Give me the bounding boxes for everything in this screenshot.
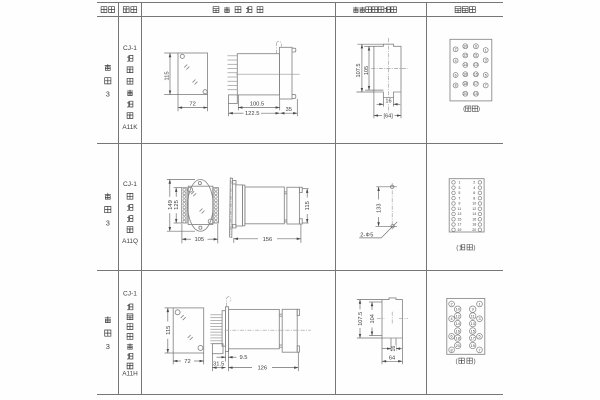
svg-text:19: 19: [457, 228, 461, 232]
svg-text:9: 9: [458, 202, 460, 206]
svg-text:104: 104: [370, 314, 376, 323]
svg-text:35: 35: [285, 107, 291, 113]
svg-text:3: 3: [478, 317, 480, 321]
svg-text:14: 14: [472, 212, 476, 216]
svg-text:5: 5: [485, 73, 487, 77]
svg-text:64: 64: [389, 355, 395, 361]
svg-text:4: 4: [451, 317, 453, 321]
svg-text:16: 16: [456, 329, 460, 333]
svg-text:1: 1: [485, 48, 487, 52]
svg-text:8: 8: [451, 348, 453, 352]
svg-text:10: 10: [463, 45, 467, 49]
svg-text:11: 11: [458, 207, 462, 211]
svg-text:15: 15: [471, 329, 475, 333]
svg-text:13: 13: [457, 212, 461, 216]
svg-text:17: 17: [474, 82, 478, 86]
svg-text:16: 16: [385, 98, 391, 104]
svg-text:72: 72: [189, 102, 195, 108]
svg-text:9.5: 9.5: [239, 355, 247, 361]
svg-text:12: 12: [472, 207, 476, 211]
svg-text:17: 17: [457, 223, 461, 227]
svg-text:11: 11: [474, 54, 478, 58]
svg-text:A11K: A11K: [122, 124, 138, 131]
svg-text:7: 7: [485, 84, 487, 88]
svg-text:8: 8: [473, 196, 475, 200]
svg-text:10: 10: [472, 202, 476, 206]
svg-text:6: 6: [451, 335, 453, 339]
svg-text:11: 11: [471, 314, 475, 318]
svg-text:18: 18: [456, 337, 460, 341]
svg-text:16: 16: [463, 73, 467, 77]
svg-text:1: 1: [458, 181, 460, 185]
svg-text:3: 3: [106, 90, 110, 99]
svg-text:20: 20: [456, 344, 460, 348]
svg-text:14: 14: [456, 322, 460, 326]
svg-text:16: 16: [472, 217, 476, 221]
svg-text:): ): [478, 106, 480, 113]
svg-text:13: 13: [471, 322, 475, 326]
svg-text:12: 12: [463, 54, 467, 58]
svg-text:107.5: 107.5: [358, 312, 364, 326]
svg-text:Φ: Φ: [366, 232, 370, 238]
svg-text:5: 5: [370, 232, 373, 238]
svg-text:CJ-1: CJ-1: [123, 45, 137, 52]
svg-text:20: 20: [472, 228, 476, 232]
svg-text:9: 9: [472, 308, 474, 312]
svg-text:115: 115: [305, 201, 311, 210]
svg-text:133: 133: [377, 204, 383, 213]
svg-text:4: 4: [455, 59, 457, 63]
svg-text:): ): [474, 358, 476, 365]
svg-text:A11H: A11H: [122, 370, 138, 377]
svg-text:105: 105: [364, 66, 370, 75]
svg-text:2: 2: [473, 181, 475, 185]
svg-text:7: 7: [478, 348, 480, 352]
svg-text:156: 156: [263, 237, 273, 243]
svg-text:72: 72: [184, 359, 190, 365]
svg-text:A11Q: A11Q: [122, 238, 138, 245]
svg-text:122.5: 122.5: [245, 111, 260, 117]
svg-text:15: 15: [474, 73, 478, 77]
svg-text:5: 5: [458, 191, 460, 195]
svg-text:CJ-1: CJ-1: [123, 291, 137, 298]
svg-text:15: 15: [457, 217, 461, 221]
svg-text:12: 12: [456, 314, 460, 318]
svg-text:3: 3: [106, 342, 110, 351]
svg-text:10: 10: [456, 308, 460, 312]
svg-text:31.5: 31.5: [213, 361, 224, 367]
svg-text:6: 6: [455, 73, 457, 77]
svg-text:2: 2: [451, 302, 453, 306]
svg-text:149: 149: [168, 200, 174, 210]
svg-text:18: 18: [472, 223, 476, 227]
svg-text:8: 8: [455, 84, 457, 88]
svg-text:5: 5: [478, 335, 480, 339]
svg-text:4: 4: [473, 186, 475, 190]
svg-text:125: 125: [174, 200, 180, 210]
svg-text:): ): [473, 244, 475, 251]
svg-text:126: 126: [257, 366, 267, 372]
svg-text:9: 9: [475, 45, 477, 49]
svg-text:[64]: [64]: [384, 113, 394, 119]
svg-text:115: 115: [166, 326, 172, 335]
svg-text:6: 6: [473, 191, 475, 195]
svg-text:7: 7: [458, 196, 460, 200]
svg-text:100.5: 100.5: [250, 102, 265, 108]
svg-text:3: 3: [458, 186, 460, 190]
svg-text:3: 3: [106, 219, 110, 228]
svg-text:CJ-1: CJ-1: [123, 181, 137, 188]
svg-text:20: 20: [463, 92, 467, 96]
svg-text:17: 17: [471, 337, 475, 341]
svg-text:16: 16: [391, 346, 397, 352]
svg-text:105: 105: [194, 237, 204, 243]
svg-text:3: 3: [485, 59, 487, 63]
svg-text:2: 2: [455, 48, 457, 52]
svg-text:1: 1: [478, 302, 480, 306]
svg-text:14: 14: [463, 63, 467, 67]
svg-text:18: 18: [463, 82, 467, 86]
svg-text:19: 19: [471, 344, 475, 348]
svg-text:19: 19: [474, 92, 478, 96]
svg-text:115: 115: [164, 71, 170, 80]
svg-text:107.5: 107.5: [356, 64, 362, 78]
svg-text:13: 13: [474, 63, 478, 67]
